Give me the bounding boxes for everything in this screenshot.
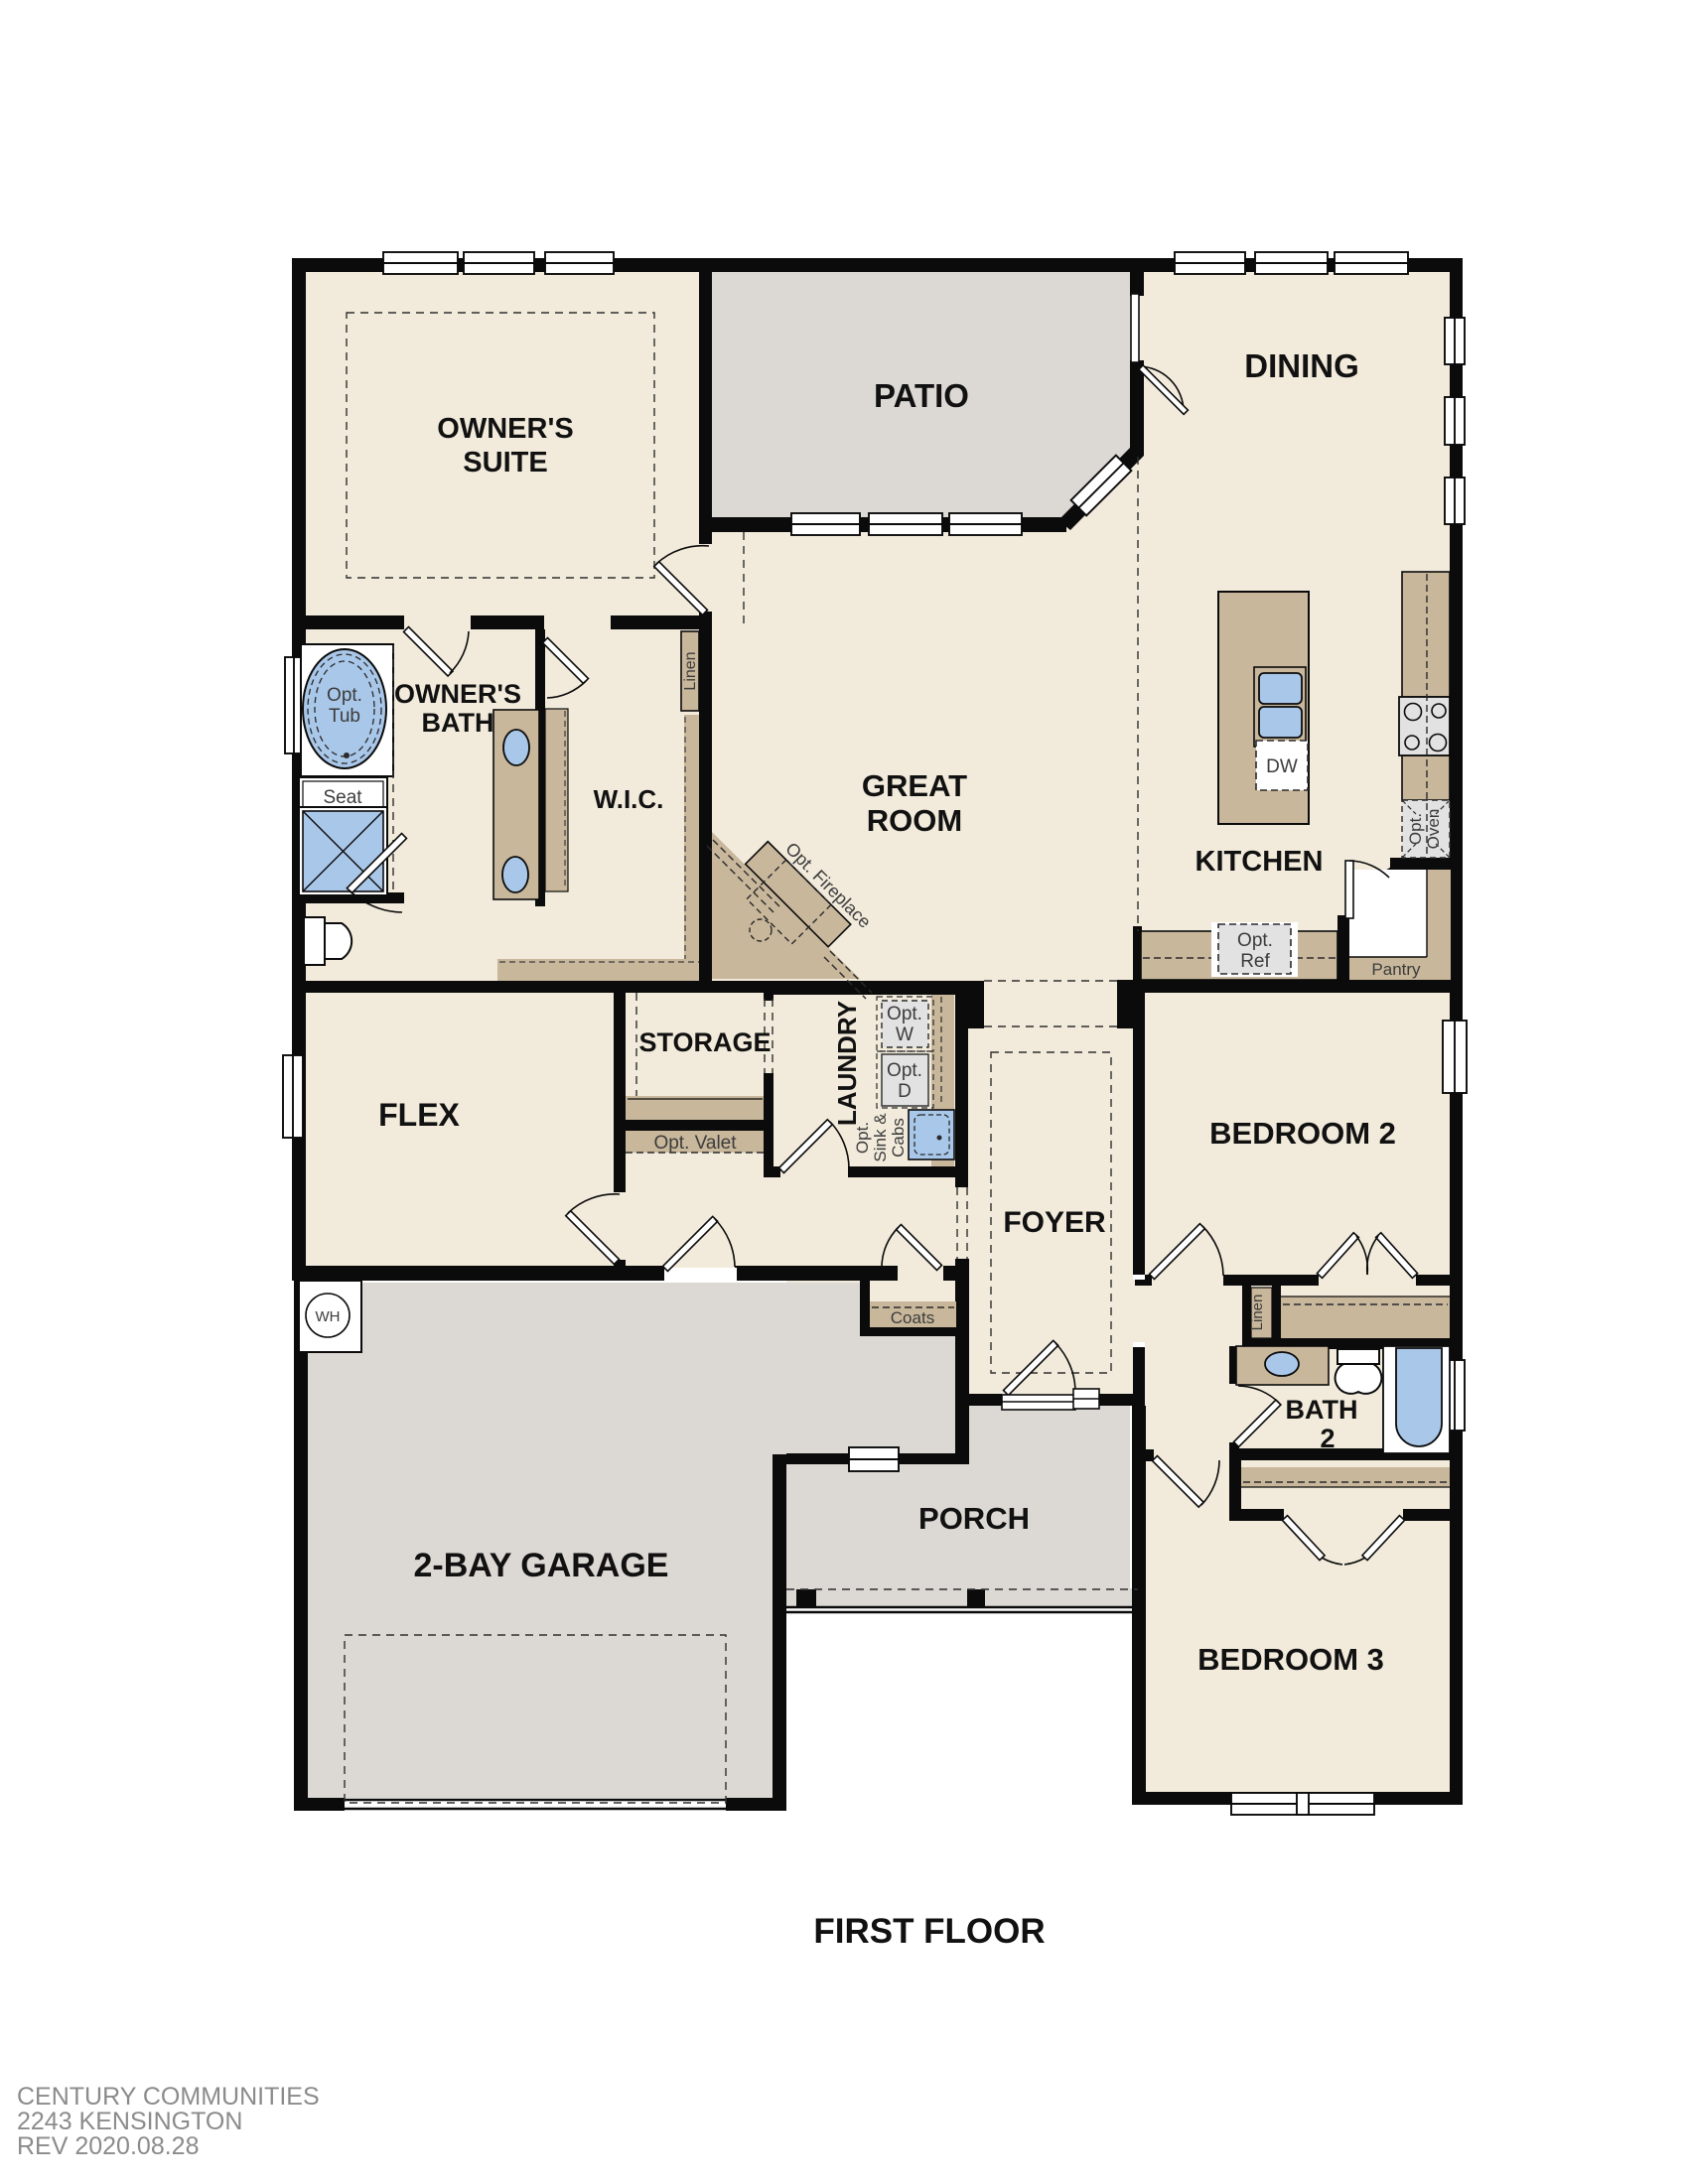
svg-text:Opt.: Opt. [1237,930,1273,951]
svg-text:W: W [896,1024,914,1045]
svg-text:Coats: Coats [891,1308,934,1327]
svg-text:Cabs: Cabs [889,1118,908,1158]
svg-text:Opt.: Opt. [853,1122,872,1154]
svg-text:Opt.: Opt. [327,685,362,706]
svg-text:Ref: Ref [1240,951,1270,972]
svg-text:BEDROOM 3: BEDROOM 3 [1197,1642,1384,1677]
svg-text:DINING: DINING [1244,347,1359,384]
svg-text:DW: DW [1266,756,1298,777]
svg-text:W.I.C.: W.I.C. [594,784,664,814]
svg-text:PATIO: PATIO [874,377,969,414]
svg-text:2243 KENSINGTON: 2243 KENSINGTON [17,2108,242,2135]
svg-text:FLEX: FLEX [378,1097,460,1133]
svg-text:FOYER: FOYER [1003,1206,1106,1239]
svg-text:FIRST FLOOR: FIRST FLOOR [813,1912,1045,1951]
svg-text:PORCH: PORCH [918,1501,1030,1536]
svg-text:2-BAY GARAGE: 2-BAY GARAGE [414,1547,669,1584]
svg-text:CENTURY COMMUNITIES: CENTURY COMMUNITIES [17,2083,320,2111]
svg-text:Opt.: Opt. [887,1004,922,1024]
svg-text:SUITE: SUITE [463,447,547,478]
svg-text:Linen: Linen [1249,1295,1266,1331]
svg-text:WH: WH [316,1308,341,1325]
svg-text:KITCHEN: KITCHEN [1196,846,1324,878]
svg-text:Linen: Linen [682,651,699,690]
svg-text:Sink &: Sink & [871,1113,890,1162]
svg-text:Tub: Tub [329,706,360,727]
svg-text:BATH: BATH [422,708,494,738]
svg-text:STORAGE: STORAGE [638,1027,771,1057]
svg-text:GREAT: GREAT [862,768,967,803]
svg-text:OWNER'S: OWNER'S [437,413,573,445]
svg-text:REV 2020.08.28: REV 2020.08.28 [17,2132,199,2160]
svg-text:BEDROOM 2: BEDROOM 2 [1209,1116,1396,1151]
svg-text:Oven: Oven [1424,809,1443,850]
svg-text:Seat: Seat [323,787,362,808]
svg-text:2: 2 [1320,1424,1335,1453]
svg-text:ROOM: ROOM [867,803,962,838]
svg-text:BATH: BATH [1286,1395,1358,1425]
svg-text:OWNER'S: OWNER'S [394,679,521,709]
svg-text:Pantry: Pantry [1371,960,1421,979]
svg-text:Opt.: Opt. [887,1060,922,1081]
svg-text:D: D [898,1081,912,1102]
svg-text:Opt.: Opt. [1406,813,1425,845]
svg-text:Opt. Valet: Opt. Valet [653,1133,737,1154]
svg-text:LAUNDRY: LAUNDRY [832,1001,862,1126]
